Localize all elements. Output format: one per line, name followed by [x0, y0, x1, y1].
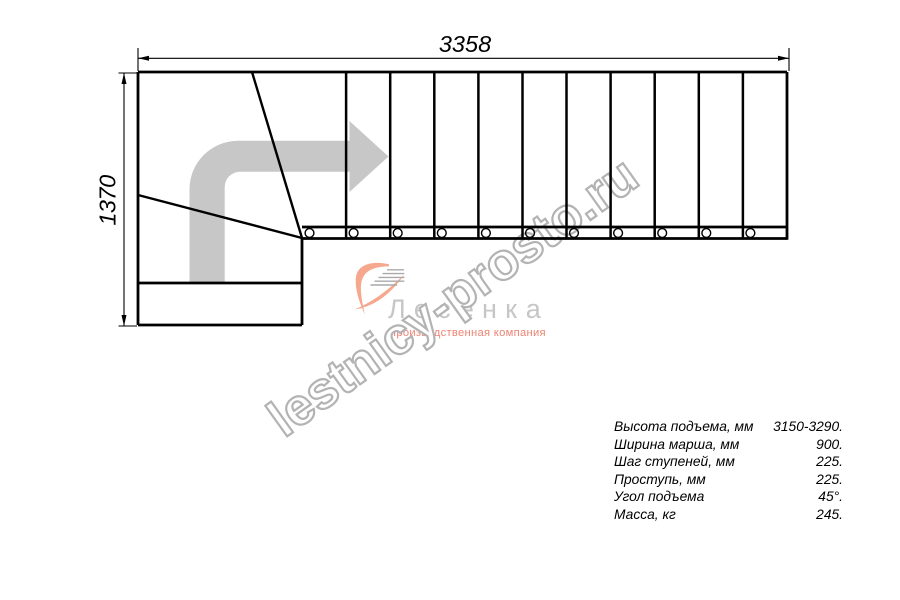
- svg-text:1370: 1370: [95, 175, 121, 226]
- svg-text:3358: 3358: [439, 31, 491, 57]
